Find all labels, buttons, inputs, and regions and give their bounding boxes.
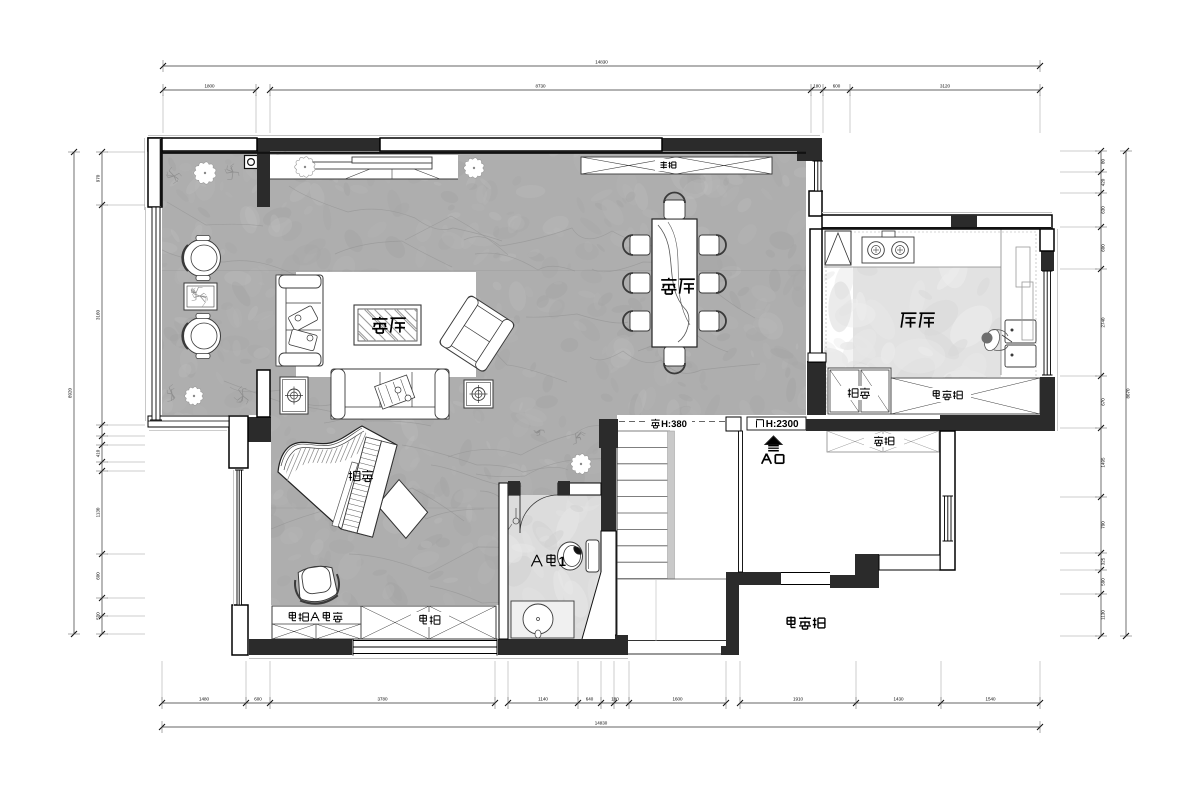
svg-text:180: 180	[813, 84, 821, 89]
svg-text:670: 670	[1101, 398, 1106, 406]
svg-text:14830: 14830	[595, 60, 608, 65]
svg-text:8920: 8920	[68, 387, 73, 398]
svg-text:510: 510	[96, 612, 101, 620]
svg-text:1140: 1140	[538, 697, 548, 702]
svg-text:8670: 8670	[1126, 388, 1131, 399]
svg-text:1: 1	[558, 554, 566, 569]
svg-text:600: 600	[1101, 244, 1106, 252]
svg-text:14830: 14830	[595, 721, 608, 726]
svg-text:3120: 3120	[940, 84, 951, 89]
svg-text:3160: 3160	[96, 309, 101, 320]
svg-text:180: 180	[611, 697, 619, 702]
svg-text:8730: 8730	[535, 84, 546, 89]
svg-text:600: 600	[254, 697, 262, 702]
svg-text:1130: 1130	[96, 507, 101, 517]
svg-text:600: 600	[96, 572, 101, 580]
svg-text:1495: 1495	[1101, 457, 1106, 468]
svg-text:790: 790	[1101, 521, 1106, 529]
svg-text:1130: 1130	[1101, 610, 1106, 620]
svg-text:325: 325	[1101, 557, 1106, 565]
svg-text:420: 420	[1101, 178, 1106, 186]
svg-text:630: 630	[1101, 206, 1106, 214]
svg-text:600: 600	[833, 84, 841, 89]
svg-text:H:2300: H:2300	[766, 419, 799, 430]
svg-text:1910: 1910	[793, 697, 804, 702]
svg-text:1600: 1600	[672, 697, 683, 702]
svg-text:1800: 1800	[204, 84, 215, 89]
svg-text:H:380: H:380	[661, 419, 687, 430]
svg-text:410: 410	[96, 449, 101, 457]
svg-text:80: 80	[1101, 159, 1106, 165]
svg-text:1540: 1540	[985, 697, 996, 702]
svg-text:970: 970	[96, 174, 101, 182]
svg-text:2740: 2740	[1101, 317, 1106, 328]
svg-text:1430: 1430	[893, 697, 904, 702]
svg-text:640: 640	[586, 697, 594, 702]
svg-text:590: 590	[1101, 578, 1106, 586]
svg-text:1480: 1480	[199, 697, 210, 702]
svg-text:3780: 3780	[377, 697, 388, 702]
